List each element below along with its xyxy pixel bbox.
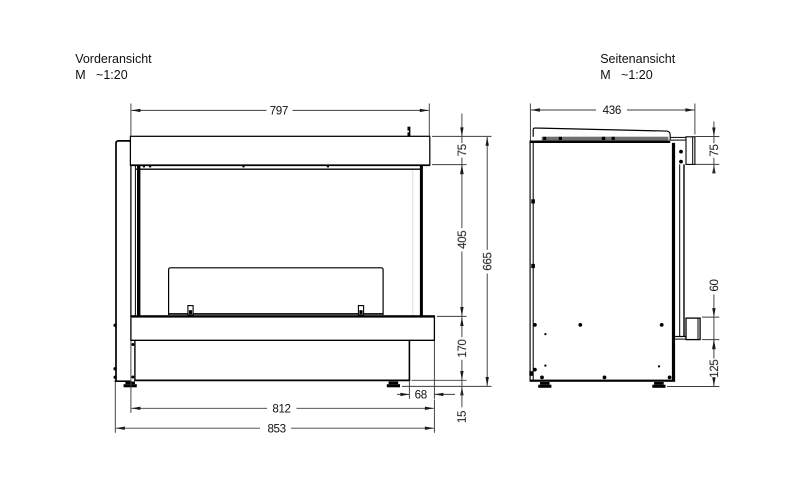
svg-text:60: 60 — [708, 279, 721, 291]
svg-text:436: 436 — [603, 104, 621, 117]
svg-text:68: 68 — [415, 389, 427, 402]
svg-text:15: 15 — [456, 411, 469, 423]
svg-text:M ~1:20: M ~1:20 — [75, 68, 128, 82]
svg-text:Seitenansicht: Seitenansicht — [600, 52, 676, 66]
svg-text:405: 405 — [456, 231, 469, 249]
svg-text:M ~1:20: M ~1:20 — [600, 68, 653, 82]
svg-text:170: 170 — [456, 339, 469, 357]
svg-text:Vorderansicht: Vorderansicht — [75, 52, 152, 66]
svg-text:665: 665 — [481, 252, 494, 270]
svg-text:125: 125 — [708, 360, 721, 378]
svg-text:853: 853 — [267, 422, 285, 435]
svg-text:75: 75 — [708, 144, 721, 156]
svg-text:797: 797 — [270, 105, 288, 118]
svg-text:812: 812 — [272, 403, 290, 416]
svg-text:75: 75 — [456, 144, 469, 156]
